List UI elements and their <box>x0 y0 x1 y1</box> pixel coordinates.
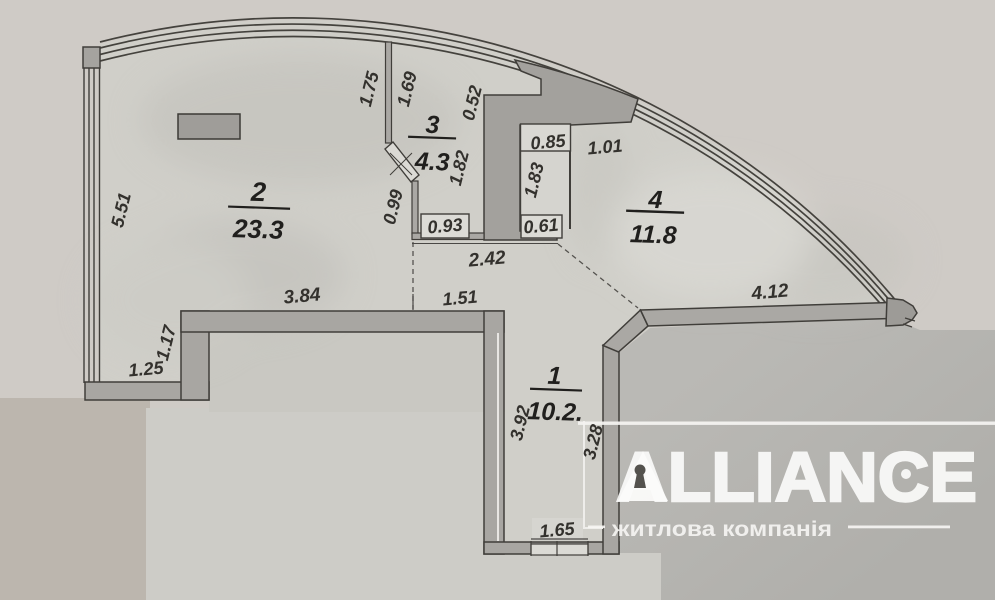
svg-text:1.25: 1.25 <box>128 357 166 380</box>
svg-text:4.3: 4.3 <box>413 147 450 176</box>
svg-text:4: 4 <box>647 186 663 215</box>
svg-text:1: 1 <box>547 362 562 390</box>
svg-text:4.12: 4.12 <box>750 280 790 304</box>
svg-text:1.01: 1.01 <box>587 136 624 159</box>
svg-text:ALLIANCE: ALLIANCE <box>616 438 977 516</box>
svg-text:2.42: 2.42 <box>467 247 507 271</box>
svg-text:3.84: 3.84 <box>283 284 322 308</box>
svg-text:житлова компанія: житлова компанія <box>611 517 832 541</box>
svg-text:0.93: 0.93 <box>427 215 464 238</box>
svg-text:1.51: 1.51 <box>442 287 479 310</box>
svg-text:23.3: 23.3 <box>232 213 285 245</box>
svg-text:11.8: 11.8 <box>629 220 677 250</box>
svg-text:3: 3 <box>425 111 440 139</box>
svg-text:10.2.: 10.2. <box>527 397 584 427</box>
svg-text:1.65: 1.65 <box>539 518 577 541</box>
svg-text:2: 2 <box>250 177 267 208</box>
svg-text:0.61: 0.61 <box>523 215 560 238</box>
svg-text:0.85: 0.85 <box>530 130 568 153</box>
